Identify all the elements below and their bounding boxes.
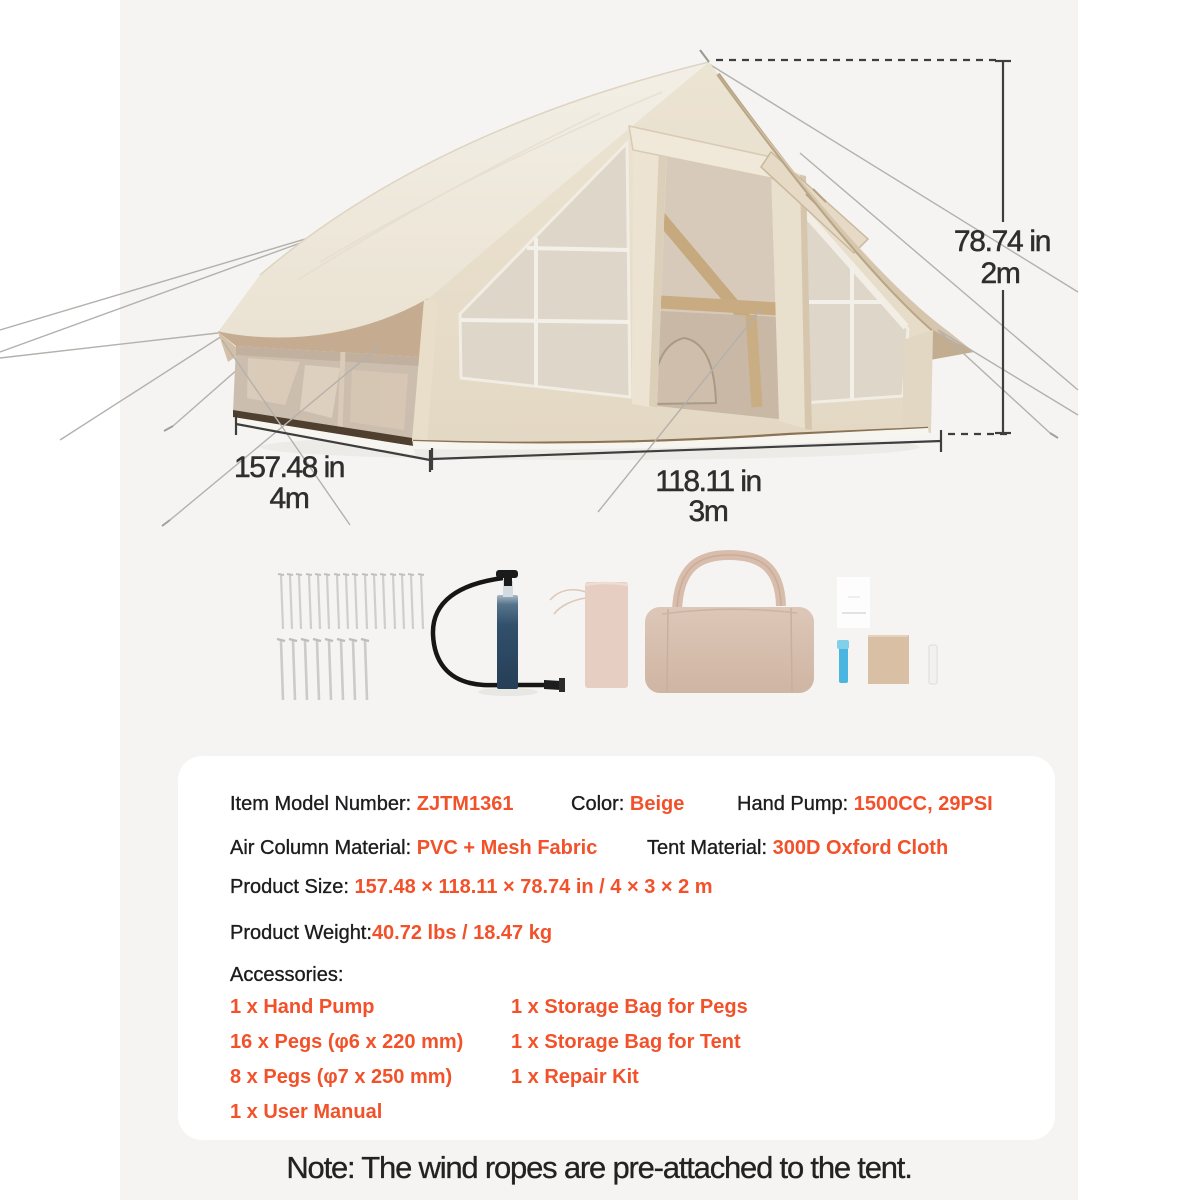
svg-text:78.74 in: 78.74 in (954, 225, 1050, 258)
svg-text:2m: 2m (980, 257, 1019, 290)
svg-text:3m: 3m (688, 495, 727, 528)
svg-text:4m: 4m (269, 482, 308, 515)
svg-text:157.48 in: 157.48 in (234, 451, 344, 484)
svg-text:118.11 in: 118.11 in (655, 465, 761, 498)
